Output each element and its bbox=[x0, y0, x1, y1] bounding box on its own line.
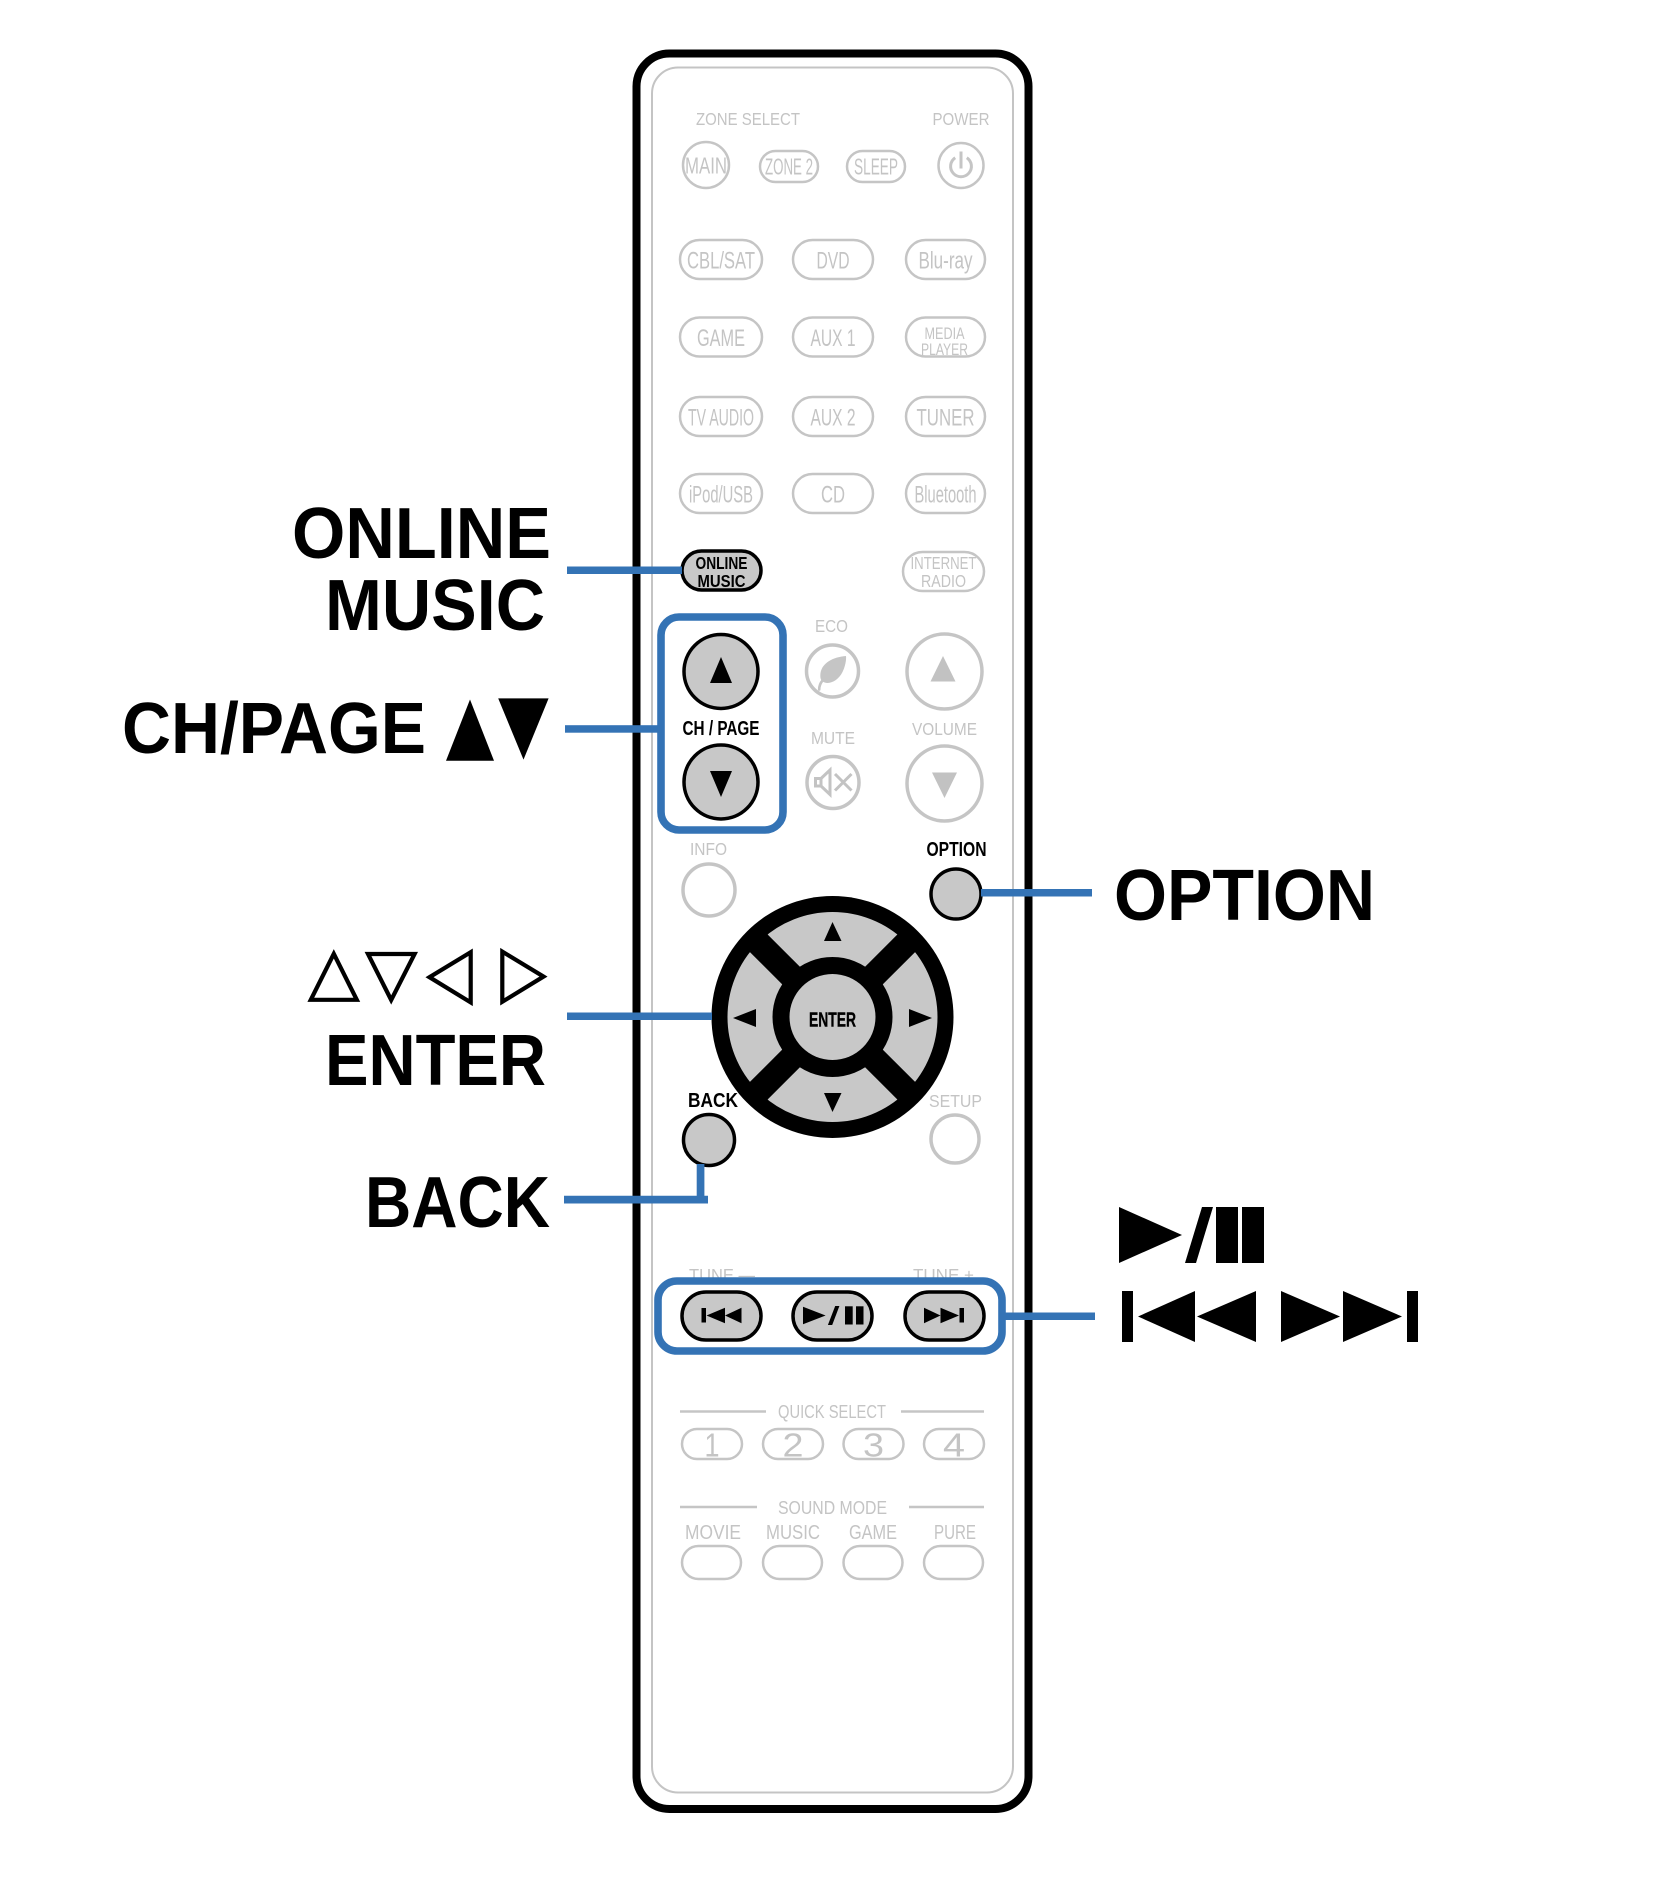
svg-text:ZONE 2: ZONE 2 bbox=[765, 154, 813, 180]
svg-text:DVD: DVD bbox=[817, 248, 850, 275]
svg-text:PLAYER: PLAYER bbox=[921, 340, 968, 359]
svg-text:INFO: INFO bbox=[690, 839, 727, 859]
svg-text:OPTION: OPTION bbox=[927, 839, 987, 861]
svg-text:2: 2 bbox=[783, 1427, 804, 1464]
svg-text:POWER: POWER bbox=[933, 109, 990, 129]
svg-text:MAIN: MAIN bbox=[685, 153, 727, 179]
svg-text:iPod/USB: iPod/USB bbox=[689, 482, 753, 509]
svg-text:ECO: ECO bbox=[815, 616, 848, 636]
svg-text:OPTION: OPTION bbox=[1114, 856, 1375, 936]
svg-text:MUSIC: MUSIC bbox=[325, 566, 545, 646]
svg-text:MUTE: MUTE bbox=[811, 728, 855, 748]
svg-text:Blu-ray: Blu-ray bbox=[919, 248, 974, 275]
svg-text:4: 4 bbox=[943, 1427, 965, 1464]
svg-text:CD: CD bbox=[821, 482, 845, 509]
svg-text:RADIO: RADIO bbox=[921, 571, 966, 591]
svg-text:SOUND MODE: SOUND MODE bbox=[778, 1498, 887, 1518]
svg-text:ZONE SELECT: ZONE SELECT bbox=[696, 109, 800, 129]
svg-text:MUSIC: MUSIC bbox=[766, 1521, 820, 1544]
svg-text:ONLINE: ONLINE bbox=[696, 553, 748, 573]
svg-text:AUX 2: AUX 2 bbox=[811, 405, 856, 432]
svg-text:CH/PAGE: CH/PAGE bbox=[122, 689, 426, 769]
svg-text:CH / PAGE: CH / PAGE bbox=[683, 717, 760, 740]
svg-text:AUX 1: AUX 1 bbox=[811, 325, 856, 352]
svg-text:PURE: PURE bbox=[934, 1521, 976, 1544]
svg-text:GAME: GAME bbox=[849, 1521, 897, 1544]
svg-text:MUSIC: MUSIC bbox=[698, 571, 746, 591]
svg-text:QUICK SELECT: QUICK SELECT bbox=[778, 1402, 886, 1422]
svg-text:Bluetooth: Bluetooth bbox=[915, 482, 977, 509]
svg-text:VOLUME: VOLUME bbox=[912, 719, 977, 739]
svg-text:SLEEP: SLEEP bbox=[854, 154, 898, 180]
svg-text:BACK: BACK bbox=[688, 1090, 738, 1112]
svg-text:SETUP: SETUP bbox=[929, 1091, 982, 1111]
svg-text:ENTER: ENTER bbox=[809, 1009, 856, 1032]
svg-text:ONLINE: ONLINE bbox=[292, 494, 551, 574]
svg-text:ENTER: ENTER bbox=[325, 1021, 546, 1101]
svg-text:CBL/SAT: CBL/SAT bbox=[687, 248, 755, 275]
svg-text:GAME: GAME bbox=[697, 325, 745, 352]
svg-text:TUNER: TUNER bbox=[917, 405, 975, 432]
svg-text:1: 1 bbox=[705, 1427, 720, 1464]
svg-text:3: 3 bbox=[863, 1427, 884, 1464]
svg-text:MOVIE: MOVIE bbox=[685, 1521, 741, 1544]
svg-text:BACK: BACK bbox=[365, 1163, 550, 1243]
svg-text:INTERNET: INTERNET bbox=[911, 553, 977, 573]
svg-text:TV AUDIO: TV AUDIO bbox=[688, 405, 754, 432]
